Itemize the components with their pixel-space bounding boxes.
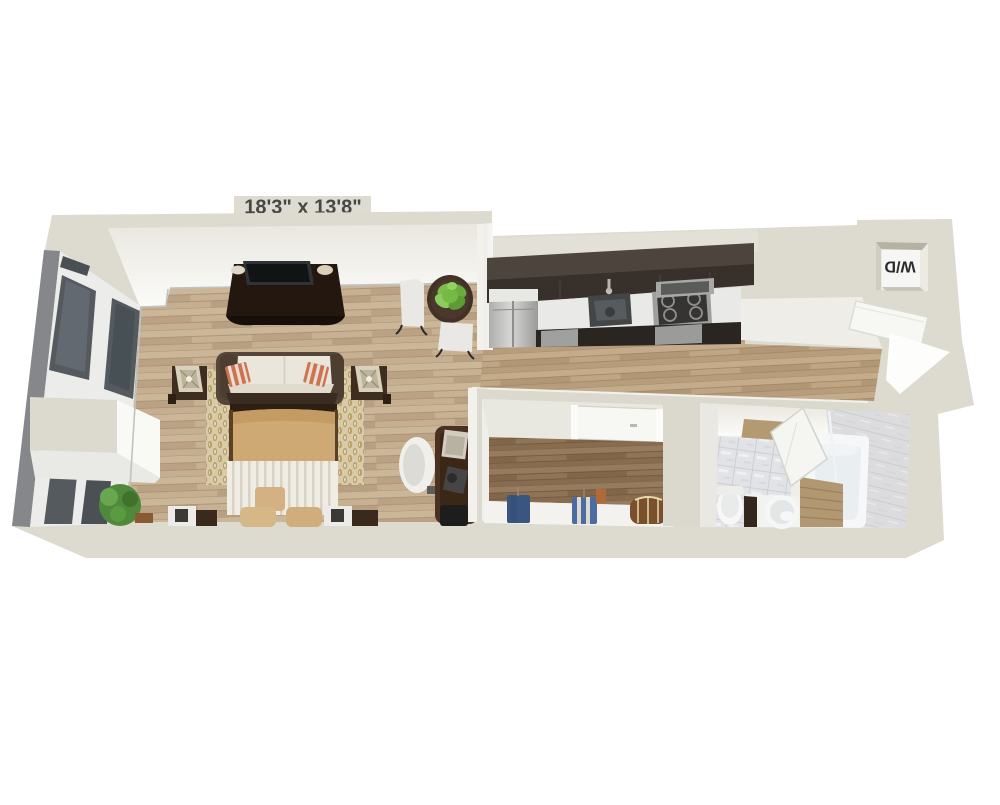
- svg-text:W/D: W/D: [884, 258, 915, 275]
